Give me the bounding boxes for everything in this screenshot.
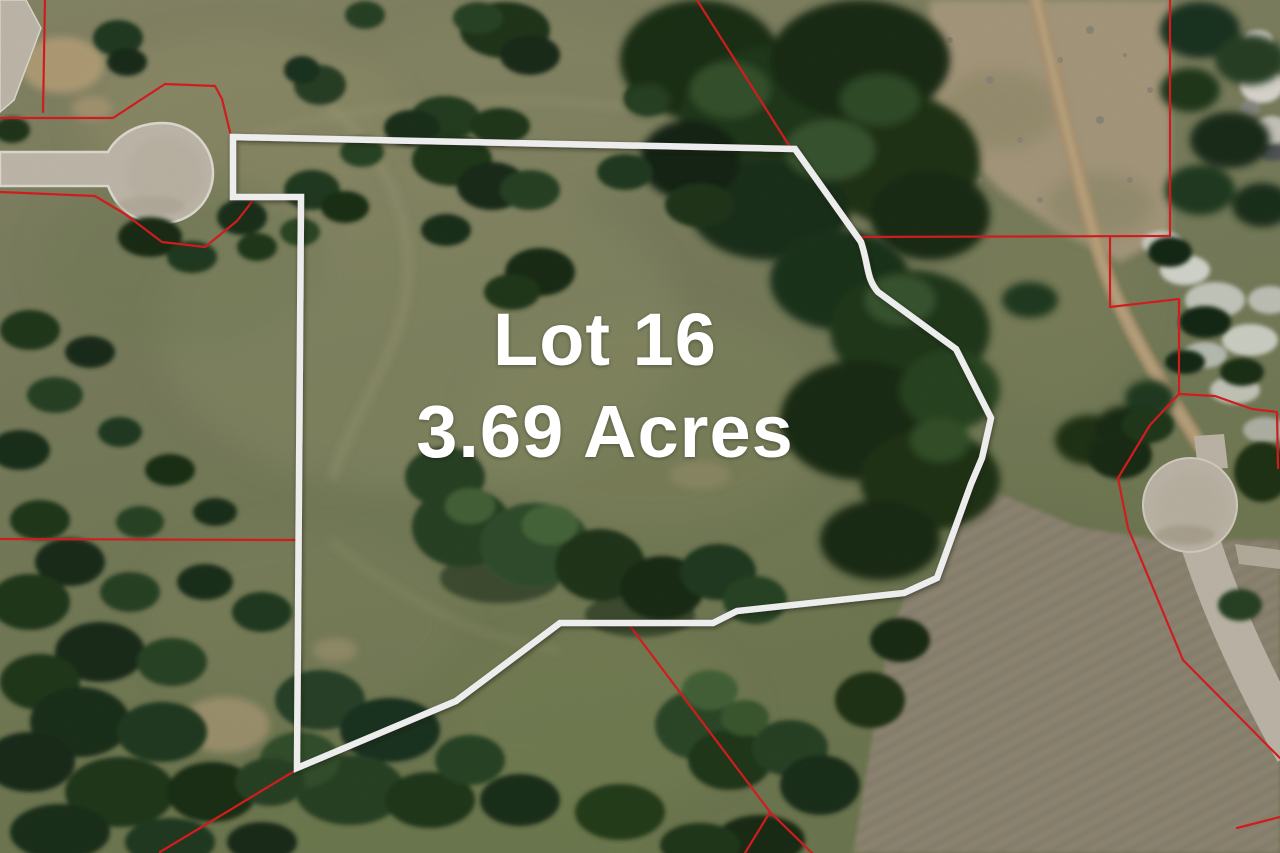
aerial-photo bbox=[0, 0, 1280, 853]
aerial-parcel-map: Lot 16 3.69 Acres bbox=[0, 0, 1280, 853]
photo-grain-overlay bbox=[0, 0, 1280, 853]
